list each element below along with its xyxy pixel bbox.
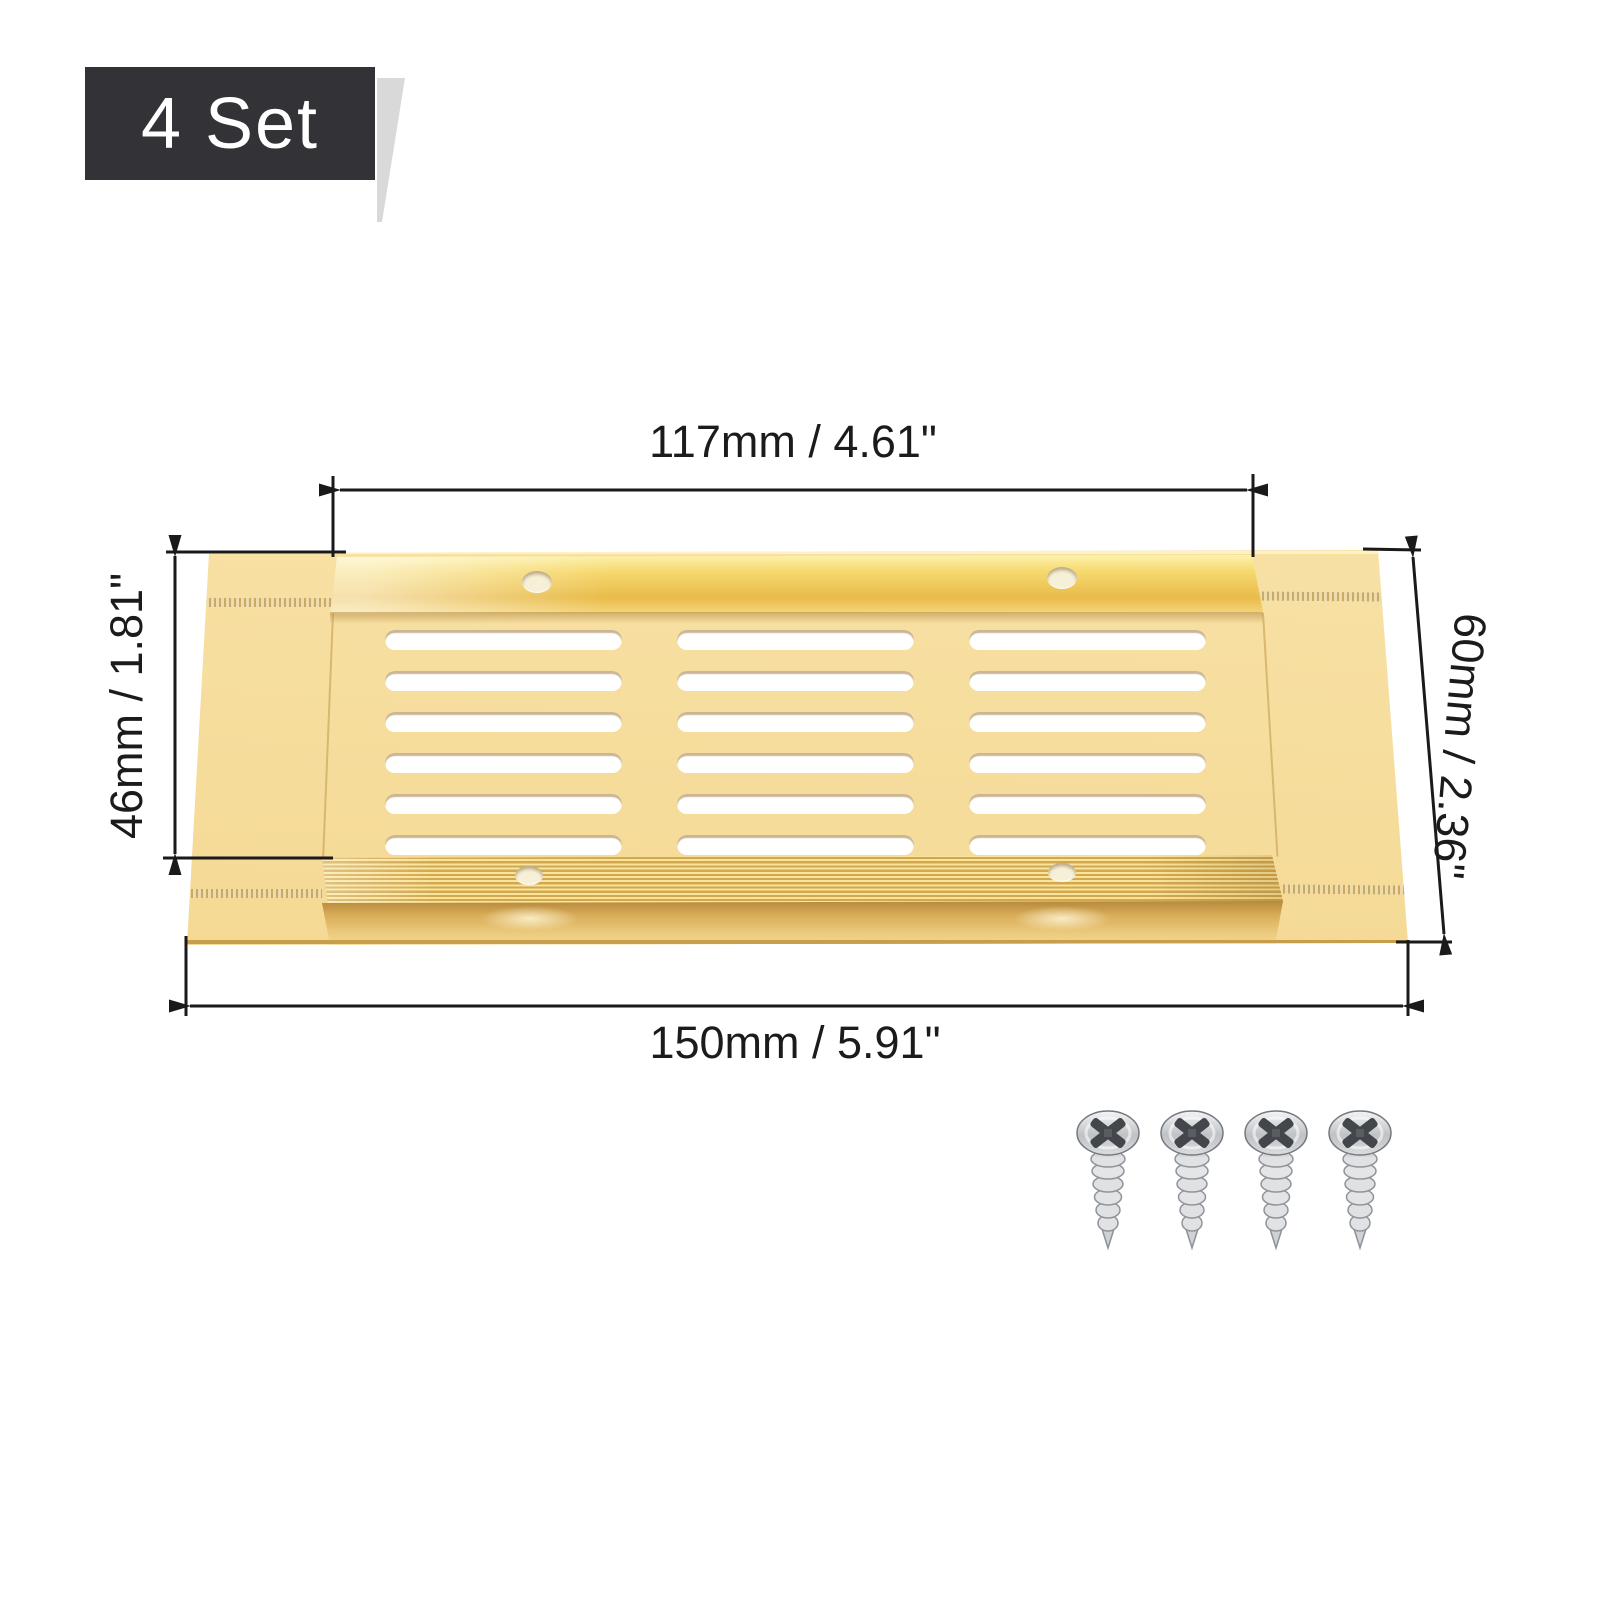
panel-crease-left [322, 613, 334, 857]
knurl-seam-top-left [204, 598, 337, 607]
product-listing-image: 4 Set [0, 0, 1600, 1600]
quantity-badge-label: 4 Set [141, 83, 319, 165]
vent-slot [677, 630, 914, 650]
vent-slot [385, 630, 622, 650]
vent-slot [385, 712, 622, 732]
vent-slot [677, 712, 914, 732]
vent-slot [969, 712, 1206, 732]
vent-grid [385, 630, 1206, 858]
panel-crease-right [1262, 613, 1278, 857]
badge-ribbon-fold [374, 78, 406, 222]
vent-grille-plate [0, 0, 1600, 1600]
front-apron-fold [322, 901, 1283, 945]
vent-slot [677, 671, 914, 691]
screw-hole-top-right [1047, 567, 1077, 589]
top-mounting-flange [330, 555, 1263, 614]
screw [1327, 1105, 1393, 1255]
screws [1075, 1105, 1435, 1265]
vent-slot [969, 835, 1206, 855]
vent-slot [385, 671, 622, 691]
screw-hole-bottom-left [515, 866, 543, 885]
vent-slot [677, 835, 914, 855]
plate-bottom-edge [187, 940, 1408, 944]
vent-slot [385, 794, 622, 814]
screw [1243, 1105, 1309, 1255]
screw [1159, 1105, 1225, 1255]
dimension-label-left-height: 46mm / 1.81" [103, 541, 151, 871]
vent-slot [969, 630, 1206, 650]
bottom-ridged-rail [322, 855, 1283, 905]
screw-hole-top-left [522, 571, 552, 593]
screw-hole-bottom-right [1048, 863, 1076, 882]
vent-slot [969, 753, 1206, 773]
vent-slot [385, 753, 622, 773]
plate-top-edge [209, 551, 1378, 554]
vent-slot [677, 794, 914, 814]
vent-slot [969, 794, 1206, 814]
dimension-label-top-width: 117mm / 4.61" [583, 418, 1003, 466]
dimension-label-right-height: 60mm / 2.36" [1421, 580, 1498, 913]
knurl-seam-bottom-right [1283, 884, 1405, 894]
knurl-seam-top-right [1257, 591, 1383, 601]
screw [1075, 1105, 1141, 1255]
quantity-badge: 4 Set [85, 67, 375, 180]
vent-slot [969, 671, 1206, 691]
knurl-seam-bottom-left [191, 889, 322, 898]
dimension-label-bottom-width: 150mm / 5.91" [585, 1019, 1005, 1067]
vent-slot [677, 753, 914, 773]
flange-shadow [330, 612, 1263, 624]
vent-slot [385, 835, 622, 855]
